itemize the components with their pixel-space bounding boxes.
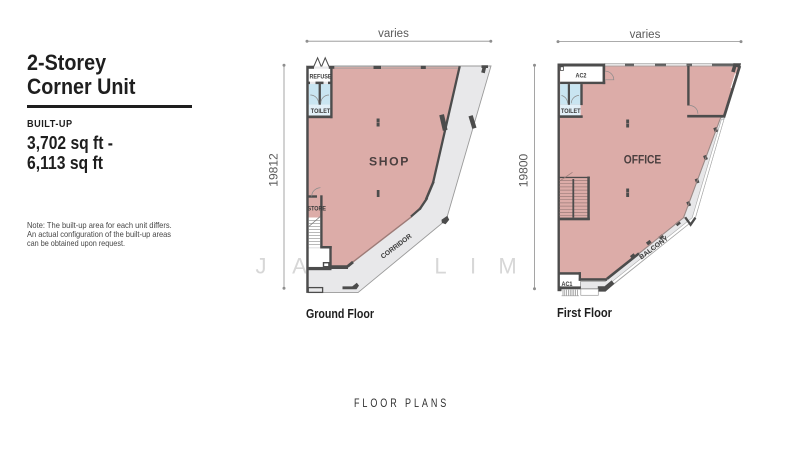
svg-text:REFUSE: REFUSE (310, 74, 332, 81)
svg-text:TOILET: TOILET (561, 108, 581, 115)
svg-text:varies: varies (630, 29, 661, 41)
svg-text:OFFICE: OFFICE (624, 152, 662, 166)
svg-text:19812: 19812 (267, 153, 281, 187)
svg-text:AC2: AC2 (576, 73, 587, 80)
svg-text:M: M (498, 254, 516, 279)
svg-text:varies: varies (378, 28, 409, 40)
svg-text:L: L (434, 254, 446, 279)
svg-text:STORE: STORE (308, 205, 327, 212)
svg-text:A: A (292, 254, 307, 279)
svg-text:I: I (470, 254, 476, 279)
svg-text:TOILET: TOILET (311, 108, 331, 115)
svg-text:SHOP: SHOP (369, 154, 410, 168)
svg-text:19800: 19800 (517, 153, 531, 187)
svg-text:J: J (256, 254, 267, 279)
